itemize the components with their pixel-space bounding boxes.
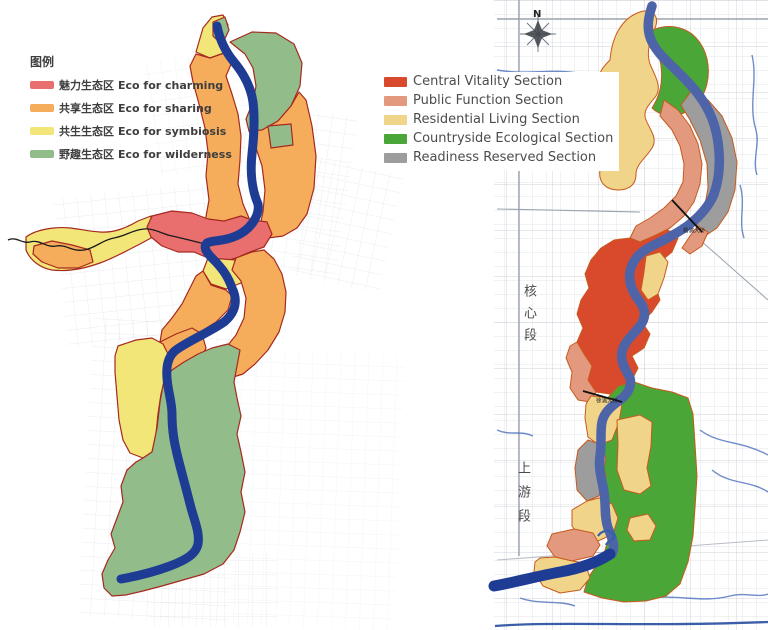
- charming-swatch: [30, 81, 54, 89]
- charming-label-en: Eco for charming: [118, 79, 223, 92]
- legend-item-charming: 魅力生态区 Eco for charming: [30, 77, 232, 93]
- sharing-label-en: Eco for sharing: [118, 102, 212, 115]
- reserved-label: Readiness Reserved Section: [413, 150, 596, 165]
- planning-maps: 图例 魅力生态区 Eco for charming 共享生态区 Eco for …: [0, 0, 768, 630]
- region-residential-east-a: [617, 415, 652, 494]
- bridge-label-south: 徐浦大桥: [596, 396, 618, 404]
- reserved-swatch: [384, 153, 407, 163]
- region-wilderness-east-patch: [268, 124, 293, 148]
- wilderness-label-zh: 野趣生态区: [59, 146, 114, 162]
- residential-label: Residential Living Section: [413, 112, 580, 127]
- left-legend-title: 图例: [30, 53, 232, 70]
- legend-item-symbiosis: 共生生态区 Eco for symbiosis: [30, 123, 232, 139]
- bridge-label-north: 杨浦大桥: [683, 226, 705, 234]
- right-legend: Central Vitality Section Public Function…: [384, 72, 619, 171]
- vitality-label: Central Vitality Section: [413, 74, 562, 89]
- region-public-bottom: [547, 529, 600, 561]
- public-swatch: [384, 96, 407, 106]
- upstream-section-label: 上游段: [516, 461, 529, 533]
- ecological-label: Countryside Ecological Section: [413, 131, 613, 146]
- legend-item-residential: Residential Living Section: [384, 112, 613, 127]
- charming-label-zh: 魅力生态区: [59, 77, 114, 93]
- wilderness-swatch: [30, 150, 54, 158]
- vitality-swatch: [384, 77, 407, 87]
- sharing-label-zh: 共享生态区: [59, 100, 114, 116]
- symbiosis-label-en: Eco for symbiosis: [118, 125, 226, 138]
- core-section-label: 核心段: [522, 284, 535, 350]
- wilderness-label-en: Eco for wilderness: [118, 148, 232, 161]
- legend-item-public: Public Function Section: [384, 93, 613, 108]
- symbiosis-label-zh: 共生生态区: [59, 123, 114, 139]
- left-legend: 图例 魅力生态区 Eco for charming 共享生态区 Eco for …: [30, 53, 232, 169]
- legend-item-sharing: 共享生态区 Eco for sharing: [30, 100, 232, 116]
- north-label: N: [533, 9, 541, 20]
- legend-item-ecological: Countryside Ecological Section: [384, 131, 613, 146]
- sharing-swatch: [30, 104, 54, 112]
- residential-swatch: [384, 115, 407, 125]
- symbiosis-swatch: [30, 127, 54, 135]
- legend-item-reserved: Readiness Reserved Section: [384, 150, 613, 165]
- ecological-swatch: [384, 134, 407, 144]
- public-label: Public Function Section: [413, 93, 563, 108]
- legend-item-vitality: Central Vitality Section: [384, 74, 613, 89]
- legend-item-wilderness: 野趣生态区 Eco for wilderness: [30, 146, 232, 162]
